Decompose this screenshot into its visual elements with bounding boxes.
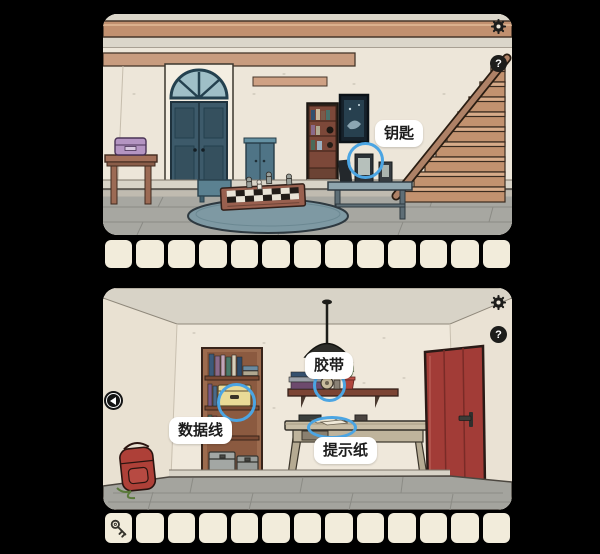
help-question-icon[interactable]: ?	[490, 55, 507, 72]
inventory-slot[interactable]	[420, 240, 447, 268]
study-room-illustration[interactable]	[103, 288, 512, 510]
annotation-label-tape: 胶带	[305, 352, 353, 379]
inventory-slot[interactable]	[325, 513, 352, 543]
inventory-slot[interactable]	[231, 240, 258, 268]
inventory-slot[interactable]	[136, 240, 163, 268]
inventory-bar-top	[105, 240, 510, 268]
annotation-label-paper: 提示纸	[314, 437, 377, 464]
scene-panel-foyer[interactable]: 钥匙 ?	[103, 14, 512, 235]
back-arrow-icon[interactable]	[104, 391, 123, 410]
inventory-slot[interactable]	[168, 513, 195, 543]
inventory-slot[interactable]	[136, 513, 163, 543]
annotation-label-cable: 数据线	[169, 417, 232, 444]
settings-gear-icon[interactable]	[489, 293, 508, 312]
inventory-slot[interactable]	[357, 513, 384, 543]
key-item-icon[interactable]	[108, 517, 130, 539]
game-screenshot: 钥匙 ?	[0, 0, 600, 554]
inventory-slot[interactable]	[420, 513, 447, 543]
inventory-slot[interactable]	[357, 240, 384, 268]
inventory-slot[interactable]	[294, 240, 321, 268]
inventory-slot[interactable]	[231, 513, 258, 543]
highlight-circle-paper[interactable]	[307, 416, 357, 439]
inventory-slot[interactable]	[388, 240, 415, 268]
settings-gear-icon[interactable]	[489, 17, 508, 36]
inventory-slot[interactable]	[325, 240, 352, 268]
inventory-slot[interactable]	[199, 513, 226, 543]
inventory-slot[interactable]	[168, 240, 195, 268]
help-question-icon[interactable]: ?	[490, 326, 507, 343]
highlight-circle-key[interactable]	[347, 142, 384, 179]
inventory-slot[interactable]	[105, 240, 132, 268]
inventory-slot[interactable]	[262, 240, 289, 268]
inventory-slot-key[interactable]	[105, 513, 132, 543]
scene-panel-study[interactable]: 胶带 数据线 提示纸 ?	[103, 288, 512, 510]
inventory-bar-bottom	[105, 513, 510, 543]
inventory-slot[interactable]	[451, 240, 478, 268]
inventory-slot[interactable]	[483, 240, 510, 268]
inventory-slot[interactable]	[451, 513, 478, 543]
inventory-slot[interactable]	[294, 513, 321, 543]
inventory-slot[interactable]	[199, 240, 226, 268]
annotation-label-key: 钥匙	[375, 120, 423, 147]
foyer-room-illustration[interactable]	[103, 14, 512, 235]
inventory-slot[interactable]	[483, 513, 510, 543]
inventory-slot[interactable]	[388, 513, 415, 543]
inventory-slot[interactable]	[262, 513, 289, 543]
